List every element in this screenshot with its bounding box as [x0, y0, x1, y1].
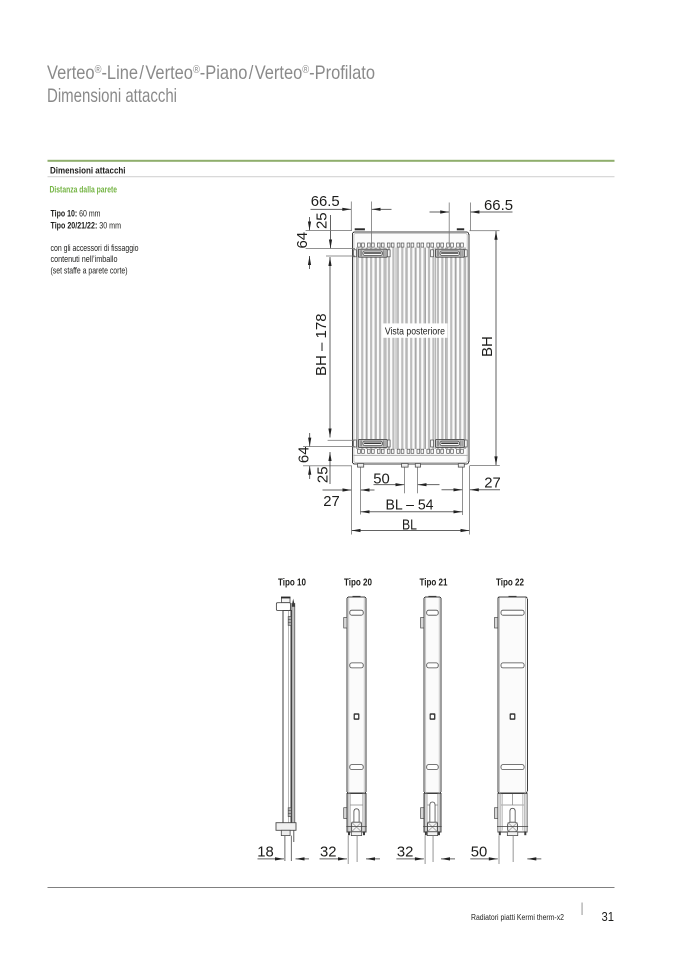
- svg-text:Tipo 20/21/22: 30 mm: Tipo 20/21/22: 30 mm: [51, 221, 122, 231]
- svg-text:25: 25: [315, 466, 332, 483]
- svg-text:50: 50: [471, 843, 488, 860]
- svg-text:64: 64: [296, 446, 313, 463]
- svg-text:66.5: 66.5: [311, 193, 340, 210]
- svg-text:Tipo 10: Tipo 10: [278, 578, 306, 589]
- svg-text:BH: BH: [479, 336, 496, 357]
- svg-text:64: 64: [294, 232, 311, 249]
- svg-text:(set staffe a parete corte): (set staffe a parete corte): [51, 266, 128, 276]
- svg-text:Distanza dalla parete: Distanza dalla parete: [50, 185, 118, 196]
- svg-text:Tipo 22: Tipo 22: [496, 578, 524, 589]
- svg-text:27: 27: [484, 475, 501, 492]
- svg-text:Tipo 20: Tipo 20: [344, 578, 372, 589]
- svg-text:Dimensioni attacchi: Dimensioni attacchi: [50, 166, 126, 177]
- svg-text:Radiatori piatti Kermi therm-x: Radiatori piatti Kermi therm-x2: [471, 913, 564, 922]
- svg-text:BH – 178: BH – 178: [313, 313, 330, 376]
- svg-text:Tipo 21: Tipo 21: [420, 578, 448, 589]
- svg-text:BL – 54: BL – 54: [386, 497, 434, 514]
- svg-text:BL: BL: [402, 517, 417, 534]
- svg-text:25: 25: [313, 212, 330, 229]
- svg-text:27: 27: [323, 493, 340, 510]
- svg-text:Vista posteriore: Vista posteriore: [385, 326, 445, 338]
- svg-text:18: 18: [257, 843, 274, 860]
- svg-text:Dimensioni attacchi: Dimensioni attacchi: [47, 85, 177, 107]
- svg-text:Tipo 10: 60 mm: Tipo 10: 60 mm: [51, 209, 101, 219]
- svg-text:con gli accessori di fissaggio: con gli accessori di fissaggio: [51, 243, 139, 253]
- svg-text:66.5: 66.5: [484, 197, 513, 214]
- svg-text:Verteo®-Line / Verteo®-Piano /: Verteo®-Line / Verteo®-Piano / Verteo®-P…: [47, 62, 375, 84]
- svg-text:32: 32: [397, 843, 414, 860]
- svg-text:32: 32: [320, 843, 337, 860]
- svg-text:31: 31: [602, 909, 615, 924]
- svg-text:contenuti nell’imballo: contenuti nell’imballo: [51, 254, 118, 264]
